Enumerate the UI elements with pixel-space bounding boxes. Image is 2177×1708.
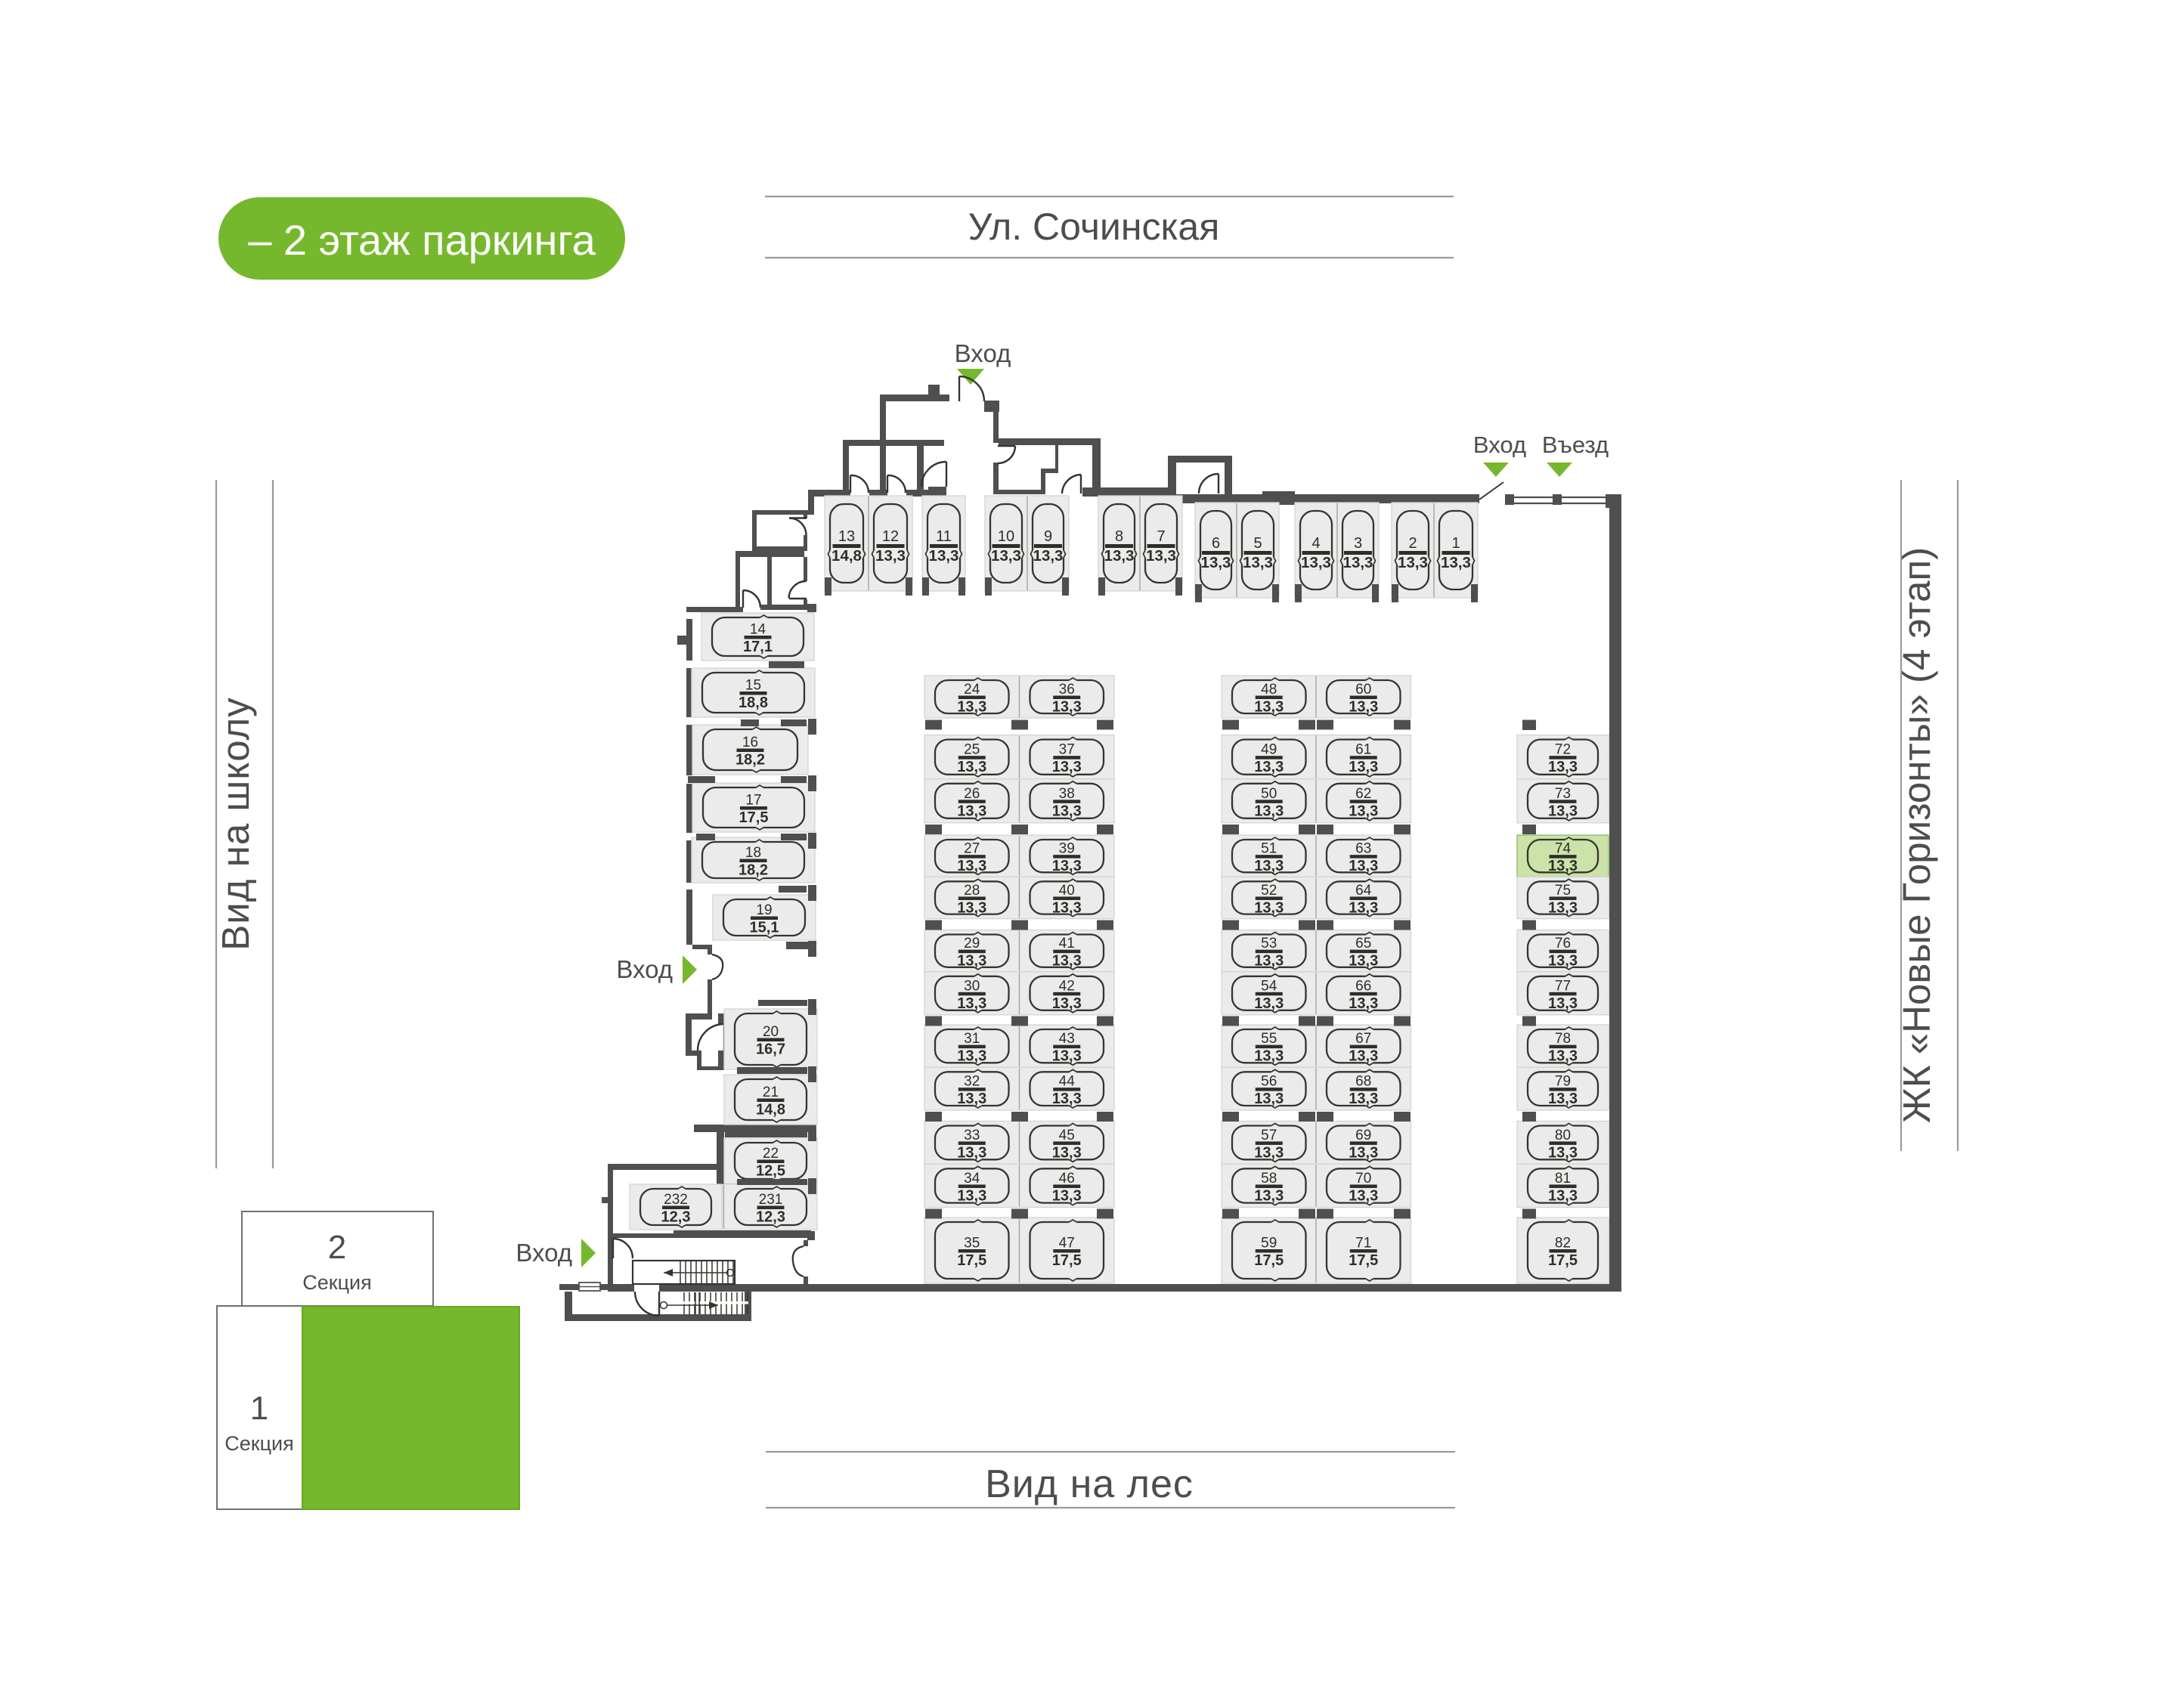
svg-text:13,3: 13,3 <box>1254 1144 1284 1161</box>
svg-text:17,5: 17,5 <box>1254 1252 1284 1269</box>
svg-text:13,3: 13,3 <box>1548 1091 1578 1107</box>
svg-text:12,3: 12,3 <box>661 1209 691 1226</box>
svg-text:38: 38 <box>1059 786 1075 802</box>
svg-text:13,3: 13,3 <box>1349 1144 1378 1161</box>
svg-text:13,3: 13,3 <box>957 1187 986 1204</box>
svg-text:27: 27 <box>964 841 980 857</box>
svg-text:Въезд: Въезд <box>1542 432 1609 458</box>
svg-text:13,3: 13,3 <box>1104 547 1135 565</box>
svg-text:73: 73 <box>1555 786 1571 802</box>
svg-text:13,3: 13,3 <box>1349 953 1378 970</box>
svg-text:71: 71 <box>1355 1236 1371 1252</box>
svg-text:232: 232 <box>664 1192 688 1208</box>
svg-text:13,3: 13,3 <box>1349 803 1378 819</box>
svg-text:82: 82 <box>1555 1236 1571 1252</box>
svg-text:78: 78 <box>1555 1031 1571 1047</box>
svg-text:34: 34 <box>964 1171 980 1187</box>
svg-text:24: 24 <box>964 682 980 698</box>
svg-text:ЖК «Новые Горизонты» (4 этап): ЖК «Новые Горизонты» (4 этап) <box>1895 547 1938 1123</box>
svg-text:13,3: 13,3 <box>1254 858 1284 874</box>
svg-text:39: 39 <box>1059 841 1075 857</box>
svg-text:74: 74 <box>1555 841 1572 857</box>
svg-text:13,3: 13,3 <box>1349 899 1378 916</box>
svg-text:13,3: 13,3 <box>1254 699 1284 716</box>
svg-text:13,3: 13,3 <box>1548 1048 1578 1065</box>
svg-text:14,8: 14,8 <box>756 1102 785 1119</box>
svg-text:13,3: 13,3 <box>957 858 986 874</box>
svg-text:18,2: 18,2 <box>739 862 768 879</box>
svg-text:13,3: 13,3 <box>957 995 986 1012</box>
svg-text:13,3: 13,3 <box>1052 699 1082 716</box>
svg-text:40: 40 <box>1059 883 1075 899</box>
svg-text:33: 33 <box>964 1128 980 1143</box>
svg-text:12: 12 <box>882 528 899 545</box>
svg-text:17,5: 17,5 <box>1349 1252 1378 1269</box>
svg-text:43: 43 <box>1059 1031 1075 1047</box>
svg-text:32: 32 <box>964 1074 980 1090</box>
svg-text:31: 31 <box>964 1031 980 1047</box>
svg-text:13,3: 13,3 <box>1343 554 1373 571</box>
svg-text:13,3: 13,3 <box>1548 858 1578 874</box>
svg-text:13,3: 13,3 <box>1548 1187 1578 1204</box>
svg-text:9: 9 <box>1044 528 1052 545</box>
svg-text:50: 50 <box>1261 786 1277 802</box>
svg-text:13,3: 13,3 <box>1548 899 1578 916</box>
svg-text:231: 231 <box>759 1192 783 1208</box>
svg-text:80: 80 <box>1555 1128 1571 1143</box>
svg-text:22: 22 <box>763 1146 779 1162</box>
svg-text:Вход: Вход <box>616 955 673 983</box>
svg-text:8: 8 <box>1115 528 1123 545</box>
svg-text:60: 60 <box>1355 682 1371 698</box>
svg-text:59: 59 <box>1261 1236 1277 1252</box>
svg-text:26: 26 <box>964 786 980 802</box>
svg-text:13,3: 13,3 <box>957 1048 986 1065</box>
svg-text:7: 7 <box>1157 528 1165 545</box>
svg-text:13,3: 13,3 <box>1441 554 1471 571</box>
svg-text:48: 48 <box>1261 682 1277 698</box>
svg-text:17: 17 <box>745 793 761 809</box>
svg-text:17,5: 17,5 <box>739 809 769 826</box>
svg-text:13,3: 13,3 <box>1254 953 1284 970</box>
svg-text:14: 14 <box>750 622 766 638</box>
svg-text:13,3: 13,3 <box>1349 858 1378 874</box>
svg-text:3: 3 <box>1354 535 1362 552</box>
svg-text:13,3: 13,3 <box>1548 1144 1578 1161</box>
svg-text:Секция: Секция <box>302 1271 372 1294</box>
svg-text:41: 41 <box>1059 936 1075 951</box>
svg-text:13,3: 13,3 <box>875 547 906 565</box>
svg-text:25: 25 <box>964 742 980 758</box>
svg-text:– 2 этаж паркинга: – 2 этаж паркинга <box>248 216 596 264</box>
svg-text:18,2: 18,2 <box>735 752 765 769</box>
svg-text:29: 29 <box>964 936 980 951</box>
svg-text:37: 37 <box>1059 742 1075 758</box>
svg-text:2: 2 <box>328 1229 346 1266</box>
svg-text:13,3: 13,3 <box>1243 554 1273 571</box>
svg-text:13,3: 13,3 <box>1052 899 1082 916</box>
svg-text:13,3: 13,3 <box>1254 1048 1284 1065</box>
svg-text:55: 55 <box>1261 1031 1277 1047</box>
svg-text:62: 62 <box>1355 786 1371 802</box>
svg-text:13,3: 13,3 <box>957 759 986 775</box>
svg-text:4: 4 <box>1311 535 1320 552</box>
svg-text:58: 58 <box>1261 1171 1277 1187</box>
svg-text:35: 35 <box>964 1236 980 1252</box>
svg-text:13,3: 13,3 <box>1052 1187 1082 1204</box>
svg-text:13,3: 13,3 <box>1052 803 1082 819</box>
svg-text:75: 75 <box>1555 883 1571 899</box>
svg-text:1: 1 <box>250 1390 268 1427</box>
svg-text:36: 36 <box>1059 682 1075 698</box>
svg-text:81: 81 <box>1555 1171 1571 1187</box>
svg-text:13,3: 13,3 <box>1254 759 1284 775</box>
svg-text:13,3: 13,3 <box>929 547 959 565</box>
svg-text:13,3: 13,3 <box>957 699 986 716</box>
svg-text:19: 19 <box>756 902 772 918</box>
svg-text:53: 53 <box>1261 936 1277 951</box>
svg-text:76: 76 <box>1555 936 1571 951</box>
svg-text:13,3: 13,3 <box>1254 1091 1284 1107</box>
svg-text:72: 72 <box>1555 742 1571 758</box>
svg-text:15: 15 <box>745 678 761 694</box>
svg-text:56: 56 <box>1261 1074 1277 1090</box>
svg-text:18: 18 <box>745 845 761 861</box>
svg-text:28: 28 <box>964 883 980 899</box>
svg-text:13,3: 13,3 <box>1052 1048 1082 1065</box>
svg-text:20: 20 <box>763 1024 779 1040</box>
svg-text:13,3: 13,3 <box>1254 1187 1284 1204</box>
svg-text:13,3: 13,3 <box>1052 995 1082 1012</box>
svg-text:Ул. Сочинская: Ул. Сочинская <box>968 206 1220 248</box>
svg-text:30: 30 <box>964 978 980 994</box>
svg-text:14,8: 14,8 <box>831 547 862 565</box>
svg-text:45: 45 <box>1059 1128 1075 1143</box>
svg-text:17,1: 17,1 <box>743 639 773 655</box>
svg-text:13,3: 13,3 <box>1052 858 1082 874</box>
svg-text:2: 2 <box>1408 535 1417 552</box>
svg-text:Вид на школу: Вид на школу <box>214 697 257 950</box>
svg-text:13,3: 13,3 <box>1201 554 1231 571</box>
svg-text:67: 67 <box>1355 1031 1371 1047</box>
svg-text:46: 46 <box>1059 1171 1075 1187</box>
svg-text:13,3: 13,3 <box>1254 803 1284 819</box>
svg-text:12,3: 12,3 <box>756 1209 785 1226</box>
svg-text:Секция: Секция <box>225 1432 294 1455</box>
svg-text:13,3: 13,3 <box>1254 995 1284 1012</box>
svg-text:52: 52 <box>1261 883 1277 899</box>
svg-text:18,8: 18,8 <box>739 695 768 711</box>
svg-text:16: 16 <box>742 735 758 750</box>
svg-text:44: 44 <box>1059 1074 1076 1090</box>
svg-text:17,5: 17,5 <box>957 1252 986 1269</box>
svg-text:13,3: 13,3 <box>1349 1187 1378 1204</box>
svg-text:77: 77 <box>1555 978 1571 994</box>
svg-text:15,1: 15,1 <box>750 920 779 936</box>
svg-text:13,3: 13,3 <box>1146 547 1176 565</box>
svg-text:13,3: 13,3 <box>1548 803 1578 819</box>
svg-text:Вход: Вход <box>516 1239 572 1267</box>
svg-text:13,3: 13,3 <box>1548 953 1578 970</box>
svg-text:65: 65 <box>1355 936 1371 951</box>
svg-text:Вид на лес: Вид на лес <box>985 1462 1194 1506</box>
svg-text:69: 69 <box>1355 1128 1371 1143</box>
svg-text:13,3: 13,3 <box>1548 995 1578 1012</box>
svg-text:17,5: 17,5 <box>1052 1252 1082 1269</box>
svg-text:42: 42 <box>1059 978 1075 994</box>
svg-text:11: 11 <box>936 528 952 545</box>
svg-text:16,7: 16,7 <box>756 1041 785 1058</box>
svg-text:13,3: 13,3 <box>957 899 986 916</box>
svg-text:1: 1 <box>1451 535 1460 552</box>
svg-text:13,3: 13,3 <box>1349 759 1378 775</box>
svg-text:10: 10 <box>998 528 1014 545</box>
svg-text:13,3: 13,3 <box>1548 759 1578 775</box>
svg-text:49: 49 <box>1261 742 1277 758</box>
svg-text:5: 5 <box>1253 535 1262 552</box>
svg-text:Вход: Вход <box>955 339 1011 367</box>
svg-text:79: 79 <box>1555 1074 1571 1090</box>
svg-text:13,3: 13,3 <box>1349 995 1378 1012</box>
svg-text:17,5: 17,5 <box>1548 1252 1578 1269</box>
svg-text:13,3: 13,3 <box>1033 547 1064 565</box>
svg-text:12,5: 12,5 <box>756 1163 785 1180</box>
svg-text:68: 68 <box>1355 1074 1371 1090</box>
svg-text:13,3: 13,3 <box>957 803 986 819</box>
svg-text:13: 13 <box>838 528 855 545</box>
svg-text:Вход: Вход <box>1473 432 1526 458</box>
svg-text:51: 51 <box>1261 841 1277 857</box>
svg-text:13,3: 13,3 <box>1301 554 1331 571</box>
svg-text:13,3: 13,3 <box>1052 759 1082 775</box>
svg-text:13,3: 13,3 <box>957 1144 986 1161</box>
svg-text:13,3: 13,3 <box>1398 554 1428 571</box>
svg-text:13,3: 13,3 <box>1052 953 1082 970</box>
svg-text:70: 70 <box>1355 1171 1371 1187</box>
svg-text:6: 6 <box>1212 535 1220 552</box>
svg-text:66: 66 <box>1355 978 1371 994</box>
svg-text:21: 21 <box>763 1085 779 1100</box>
svg-text:64: 64 <box>1355 883 1372 899</box>
svg-text:54: 54 <box>1261 978 1277 994</box>
svg-text:13,3: 13,3 <box>991 547 1021 565</box>
svg-text:13,3: 13,3 <box>1052 1091 1082 1107</box>
svg-text:57: 57 <box>1261 1128 1277 1143</box>
svg-text:13,3: 13,3 <box>1349 699 1378 716</box>
svg-text:13,3: 13,3 <box>1349 1048 1378 1065</box>
svg-text:61: 61 <box>1355 742 1371 758</box>
svg-text:13,3: 13,3 <box>1349 1091 1378 1107</box>
svg-text:13,3: 13,3 <box>1052 1144 1082 1161</box>
svg-text:13,3: 13,3 <box>957 1091 986 1107</box>
svg-text:13,3: 13,3 <box>957 953 986 970</box>
svg-text:47: 47 <box>1059 1236 1075 1252</box>
svg-text:63: 63 <box>1355 841 1371 857</box>
svg-text:13,3: 13,3 <box>1254 899 1284 916</box>
